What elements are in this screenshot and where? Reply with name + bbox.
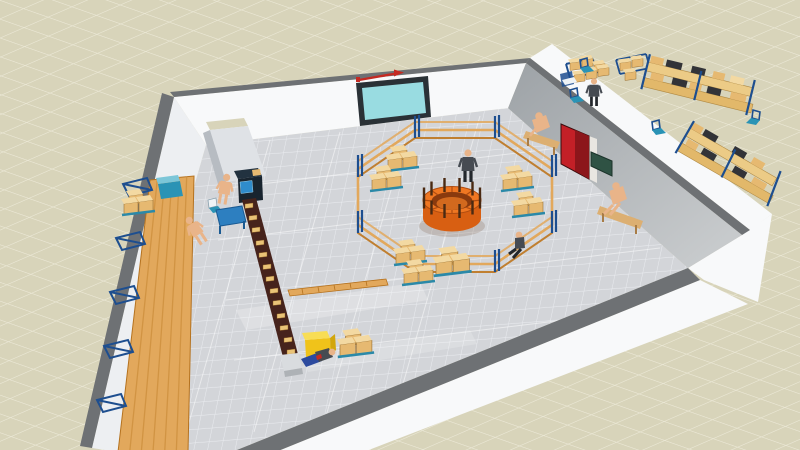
box: [568, 58, 581, 71]
box: [596, 64, 609, 77]
door-panel-shade: [575, 130, 589, 179]
conveyor-item: [277, 313, 285, 319]
conveyor-item: [259, 252, 267, 258]
box: [623, 68, 636, 81]
conveyor-item: [273, 300, 281, 306]
carousel-inner-floor: [437, 197, 468, 210]
box: [618, 58, 631, 71]
simulation-viewport[interactable]: [0, 0, 800, 450]
conveyor-item: [266, 276, 274, 282]
conveyor-item: [280, 325, 288, 331]
conveyor-item: [245, 203, 253, 209]
conveyor-item: [263, 264, 271, 270]
conveyor-item: [249, 215, 257, 221]
conveyor-item: [270, 288, 278, 294]
conveyor-item: [256, 240, 264, 246]
box: [630, 55, 643, 68]
machine-screen[interactable]: [240, 181, 253, 194]
conveyor-item: [284, 337, 292, 343]
arrow-tail: [356, 77, 360, 82]
scene-canvas: [0, 0, 800, 450]
conveyor-item: [252, 227, 260, 233]
machine-item: [252, 169, 261, 176]
worker-head: [329, 349, 336, 356]
